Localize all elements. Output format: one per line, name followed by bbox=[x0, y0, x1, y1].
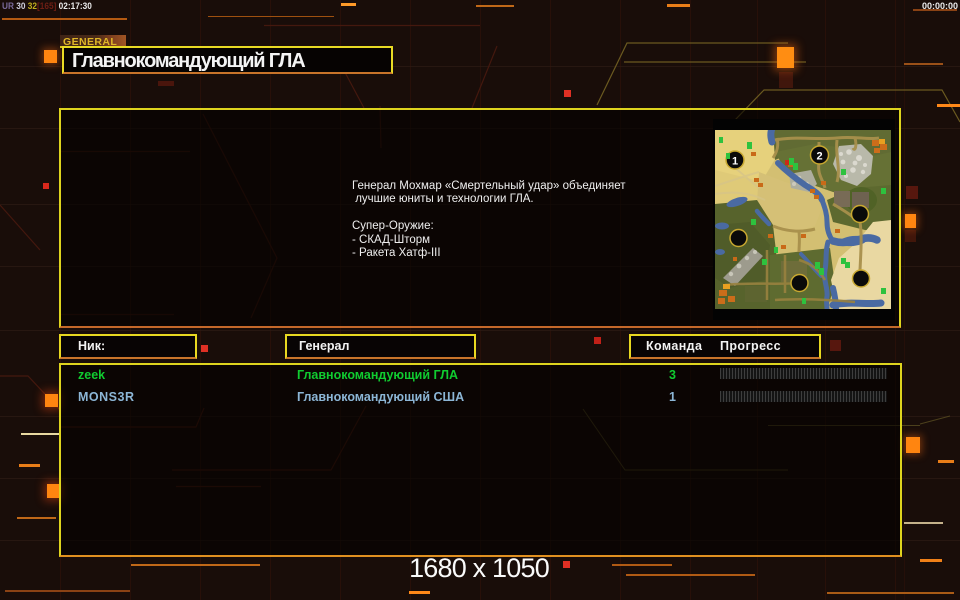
svg-text:2: 2 bbox=[816, 151, 822, 163]
svg-text:1: 1 bbox=[732, 156, 738, 168]
